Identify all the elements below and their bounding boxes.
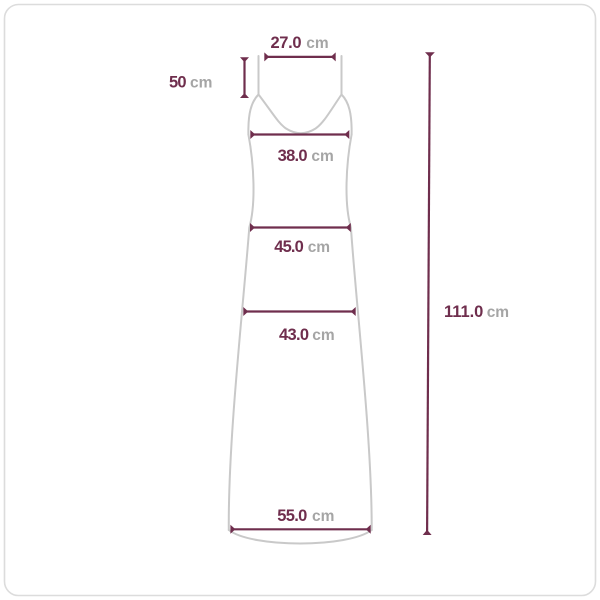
svg-text:cm: cm bbox=[312, 327, 334, 344]
svg-text:43.0: 43.0 bbox=[279, 326, 309, 344]
svg-text:50: 50 bbox=[169, 74, 187, 92]
svg-text:111.0: 111.0 bbox=[444, 303, 483, 321]
svg-text:45.0: 45.0 bbox=[274, 238, 304, 256]
svg-text:cm: cm bbox=[312, 508, 334, 525]
svg-text:cm: cm bbox=[311, 148, 333, 165]
svg-text:cm: cm bbox=[487, 304, 509, 321]
svg-text:27.0: 27.0 bbox=[271, 34, 302, 52]
svg-text:cm: cm bbox=[306, 35, 328, 52]
svg-text:cm: cm bbox=[190, 75, 212, 92]
svg-text:55.0: 55.0 bbox=[277, 507, 307, 525]
svg-text:38.0: 38.0 bbox=[278, 147, 308, 165]
svg-text:cm: cm bbox=[308, 239, 330, 256]
